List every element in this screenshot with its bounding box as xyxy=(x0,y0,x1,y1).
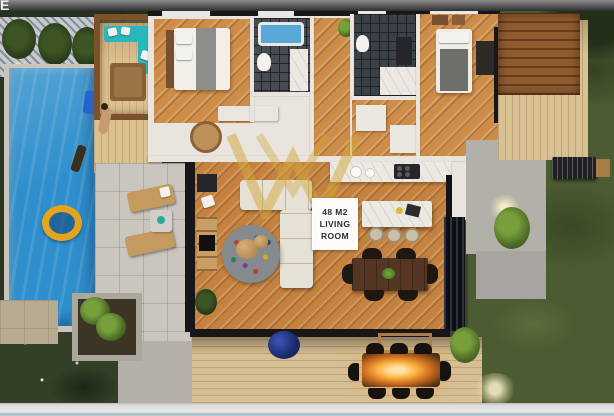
top-letterbox-bar xyxy=(0,0,614,11)
interior-wall xyxy=(252,92,310,96)
bed1-pillow xyxy=(176,48,192,60)
deck-chair xyxy=(348,363,359,381)
round-stool xyxy=(190,121,222,153)
palm-plant xyxy=(38,23,72,65)
aerial-render-scene: 48 M2 LIVING ROOM xyxy=(0,11,614,403)
bed1-runner xyxy=(196,28,216,90)
bath2-vanity xyxy=(380,67,416,95)
deck-chair xyxy=(416,388,434,399)
living-left-wall xyxy=(185,162,195,332)
rear-window xyxy=(258,11,294,16)
kitchen-island xyxy=(362,201,432,227)
deck-chair xyxy=(440,361,451,381)
fern xyxy=(494,207,530,249)
deck-plant xyxy=(450,327,480,363)
bar-stool xyxy=(404,228,420,243)
lounger-towel xyxy=(159,186,171,198)
room-label-name-2: ROOM xyxy=(321,231,349,241)
burner xyxy=(405,166,410,171)
side-pergola xyxy=(498,13,580,95)
room-label: 48 M2 LIVING ROOM xyxy=(312,198,358,250)
deck-light xyxy=(474,373,516,403)
tv-screen xyxy=(199,235,215,251)
bed1-headboard xyxy=(166,30,174,88)
bath1-vanity xyxy=(290,49,308,91)
palm-plant xyxy=(2,19,36,59)
burner xyxy=(397,166,402,171)
room-label-area: 48 M2 xyxy=(322,207,348,217)
bottom-letterbox-bar xyxy=(0,403,614,416)
dining-chair xyxy=(342,264,353,284)
sofa-section xyxy=(280,210,313,288)
toilet xyxy=(257,53,271,71)
bean-bag xyxy=(268,331,300,359)
wall-art xyxy=(452,15,465,25)
bbq-grill xyxy=(552,157,596,179)
burner xyxy=(397,172,402,177)
rear-window xyxy=(162,11,210,16)
bed2-pillow xyxy=(439,32,469,43)
dining-chair xyxy=(396,248,416,259)
bed2-blanket xyxy=(440,49,468,91)
dresser-bench xyxy=(218,106,278,121)
bar-stool xyxy=(386,228,402,243)
corner-letter: E xyxy=(0,0,9,13)
toilet xyxy=(356,35,369,52)
table-centerpiece xyxy=(382,268,395,279)
grill-side-shelf xyxy=(596,159,610,177)
table-tray xyxy=(157,216,165,224)
bar-stool xyxy=(368,227,384,242)
deck-chair xyxy=(390,343,408,354)
interior-wall xyxy=(250,16,254,122)
wardrobe xyxy=(476,41,496,75)
fruit-plate xyxy=(396,207,403,214)
room-label-name-1: LIVING xyxy=(320,219,351,229)
sofa-pillow xyxy=(120,26,130,35)
sliding-glass-doors xyxy=(444,217,465,331)
side-path xyxy=(476,251,546,299)
indoor-plant xyxy=(195,289,217,315)
bath2-cabinet xyxy=(396,37,412,65)
bed1-pillow xyxy=(176,32,192,44)
plate xyxy=(365,168,375,178)
living-right-wall xyxy=(452,162,466,220)
screenshot-frame: 48 M2 LIVING ROOM E xyxy=(0,0,614,416)
fire-table xyxy=(362,353,440,387)
interior-wall xyxy=(416,14,420,156)
person-head xyxy=(101,103,108,110)
bathtub xyxy=(258,22,304,46)
pool-float-ring xyxy=(42,205,82,241)
wall-art xyxy=(432,15,448,25)
deck-chair xyxy=(392,388,410,399)
swimming-pool xyxy=(9,68,95,326)
storage-unit xyxy=(390,125,416,153)
laundry-unit xyxy=(356,105,386,131)
daybed-cushion xyxy=(114,67,142,97)
deck-chair xyxy=(366,343,384,354)
media-cabinet xyxy=(197,174,217,192)
burner xyxy=(405,172,410,177)
dining-chair xyxy=(362,248,382,259)
pouf xyxy=(254,235,268,248)
deck-chair xyxy=(368,388,386,399)
deck-chair xyxy=(414,343,432,354)
stone-paving xyxy=(0,300,58,344)
planter-plant xyxy=(96,313,126,341)
